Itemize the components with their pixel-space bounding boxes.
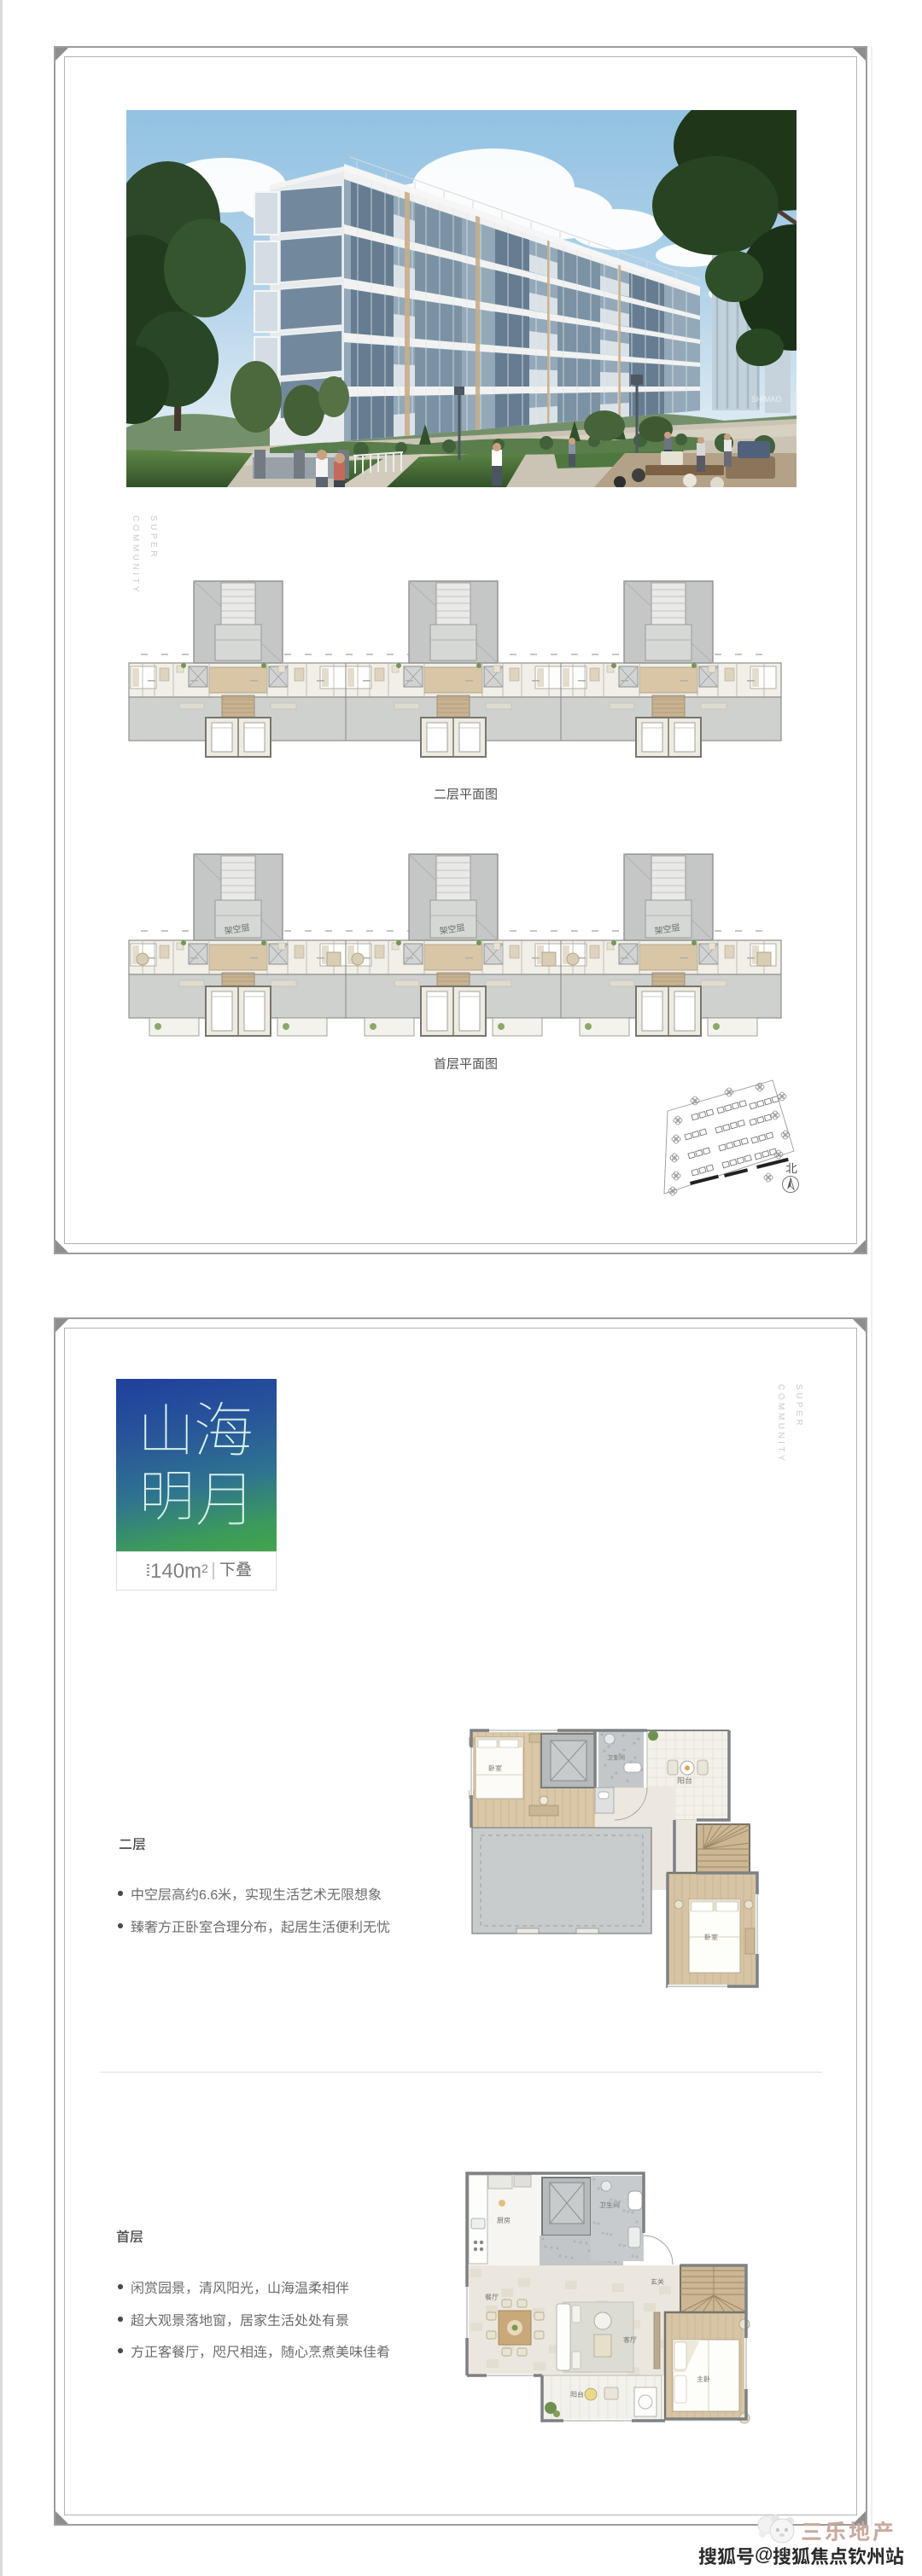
svg-text:SHIMAO: SHIMAO xyxy=(751,395,782,404)
